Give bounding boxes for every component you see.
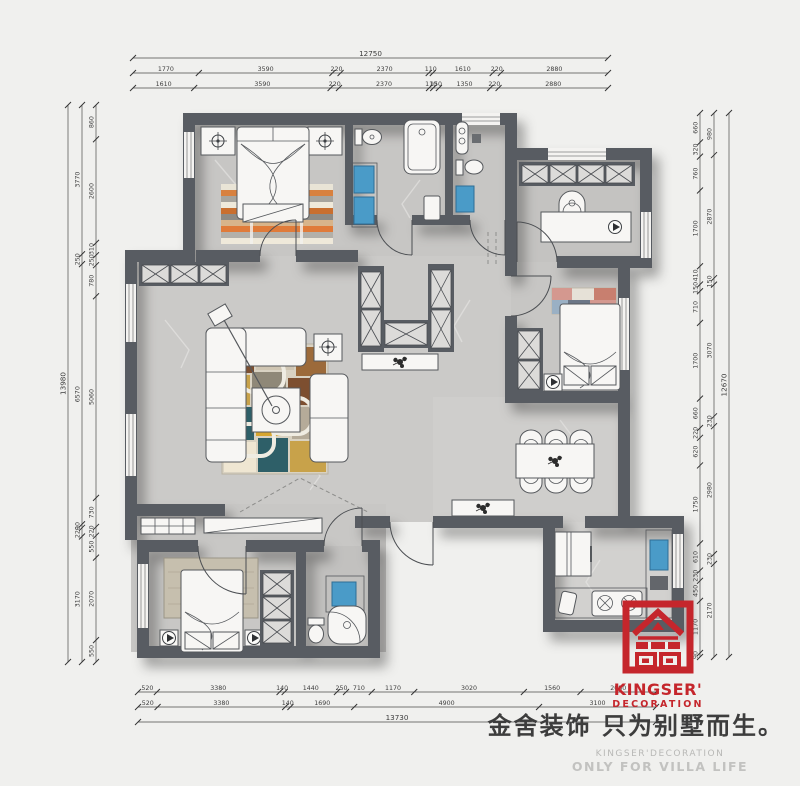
dim-label: 660 <box>693 407 700 419</box>
dim-label: 550 <box>89 541 96 553</box>
dim-label: 220 <box>693 427 700 439</box>
dim-label: 2170 <box>707 602 714 618</box>
window <box>673 534 683 588</box>
dim-label: 2880 <box>545 81 561 88</box>
shoe-cabinet <box>141 518 195 534</box>
dim-label: 13730 <box>386 713 409 722</box>
dim-label: 2370 <box>377 66 393 73</box>
window <box>126 284 136 342</box>
floor-plan-svg: 1275017703590220237011016102202880161035… <box>0 0 800 786</box>
dim-label: 110 <box>425 66 437 73</box>
dim-label: 220 <box>329 81 341 88</box>
dining-chair <box>570 476 592 493</box>
coffee-table <box>252 388 300 432</box>
dim-label: 3170 <box>75 591 82 607</box>
study-closet <box>519 162 635 186</box>
bath-mat <box>424 196 440 220</box>
dim-label: 220 <box>75 526 82 538</box>
dining-chair <box>520 476 542 493</box>
dim-label: 1770 <box>158 66 174 73</box>
dim-label: 1350 <box>457 81 473 88</box>
dim-label: 450 <box>693 585 700 597</box>
dish-rack <box>650 576 668 590</box>
window <box>548 148 606 160</box>
shower-drain <box>472 134 481 143</box>
dim-label: 520 <box>142 700 154 707</box>
dim-label: 220 <box>491 66 503 73</box>
dim-label: 2070 <box>89 591 96 607</box>
dim-label: 250 <box>75 253 82 265</box>
fan-icon <box>163 632 176 645</box>
dim-label: 250 <box>335 685 347 692</box>
sink <box>332 582 356 606</box>
dim-label: 1700 <box>693 353 700 369</box>
desk-chair <box>559 191 585 212</box>
dim-label: 1610 <box>156 81 172 88</box>
nw-closet <box>139 262 229 286</box>
south-hallway <box>141 518 322 534</box>
dim-label: 1170 <box>693 619 700 635</box>
dim-label: 1170 <box>385 685 401 692</box>
dim-label: 1560 <box>544 685 560 692</box>
dim-label: 860 <box>89 116 96 128</box>
kitchen-sink <box>650 540 668 570</box>
dim-label: 13980 <box>59 372 68 395</box>
dim-label: 3590 <box>258 66 274 73</box>
dim-label: 710 <box>693 301 700 313</box>
dim-label: 780 <box>89 275 96 287</box>
dim-label: 4900 <box>439 700 455 707</box>
dim-label: 12670 <box>720 373 729 396</box>
dim-label: 1690 <box>314 700 330 707</box>
dim-label: 230 <box>693 570 700 582</box>
dim-label: 520 <box>141 685 153 692</box>
bathtub <box>404 120 440 174</box>
toilet <box>456 160 483 175</box>
window <box>184 132 194 178</box>
dim-label: 1440 <box>303 685 319 692</box>
dim-label: 3380 <box>210 685 226 692</box>
entry-door <box>390 522 433 565</box>
dim-label: 310 <box>89 243 96 255</box>
dim-label: 3100 <box>590 700 606 707</box>
dim-label: 2370 <box>376 81 392 88</box>
floorplan-page: 1275017703590220237011016102202880161035… <box>0 0 800 786</box>
dim-label: 710 <box>353 685 365 692</box>
dim-label: 220 <box>89 525 96 537</box>
wardrobe <box>515 328 543 392</box>
dim-label: 980 <box>707 128 714 140</box>
dim-label: 3020 <box>461 685 477 692</box>
fan-icon <box>547 376 560 389</box>
dim-label: 90 <box>693 651 700 659</box>
toilet <box>308 618 324 643</box>
shower <box>328 606 366 644</box>
window <box>462 113 500 125</box>
dim-label: 12750 <box>359 49 382 58</box>
logo-name: KINGSER' <box>614 680 703 699</box>
dim-label: 220 <box>330 66 342 73</box>
dim-label: 2980 <box>707 482 714 498</box>
dining-chair <box>545 476 567 493</box>
sink <box>354 197 374 224</box>
dim-label: 760 <box>693 168 700 180</box>
dim-label: 220 <box>488 81 500 88</box>
dim-label: 620 <box>693 446 700 458</box>
dim-label: 2600 <box>89 183 96 199</box>
dim-label: 3770 <box>75 172 82 188</box>
dim-label: 250 <box>89 254 96 266</box>
dim-label: 2880 <box>546 66 562 73</box>
slogan-en-1: KINGSER'DECORATION <box>596 749 725 759</box>
fan-icon <box>609 221 622 234</box>
dim-label: 3590 <box>254 81 270 88</box>
dim-label: 6570 <box>75 386 82 402</box>
dim-label: 610 <box>693 551 700 563</box>
shower-column <box>456 122 468 154</box>
dim-label: 230 <box>707 553 714 565</box>
dim-label: 3070 <box>707 342 714 358</box>
fan-icon <box>248 632 261 645</box>
slogan-cn: 金舍装饰 只为别墅而生。 <box>487 712 784 740</box>
dim-label: 730 <box>89 506 96 518</box>
logo-sub: DECORATION <box>612 699 703 710</box>
dim-label: 410 <box>693 269 700 281</box>
dim-label: 2870 <box>707 209 714 225</box>
dim-label: 660 <box>693 122 700 134</box>
dim-label: 230 <box>707 415 714 427</box>
dim-label: 1610 <box>455 66 471 73</box>
window <box>641 212 651 258</box>
sink <box>456 186 474 212</box>
dim-label: 5060 <box>89 389 96 405</box>
toilet <box>355 129 382 145</box>
window <box>138 564 148 628</box>
slogan-en-2: ONLY FOR VILLA LIFE <box>572 759 748 774</box>
console-cabinet <box>204 518 322 533</box>
wardrobe <box>260 570 294 648</box>
sink <box>354 166 374 193</box>
dim-label: 550 <box>89 645 96 657</box>
dim-label: 320 <box>693 144 700 156</box>
dim-label: 1750 <box>693 496 700 512</box>
window <box>126 414 136 476</box>
dim-label: 3380 <box>213 700 229 707</box>
dim-label: 1700 <box>693 220 700 236</box>
refrigerator <box>555 532 591 576</box>
